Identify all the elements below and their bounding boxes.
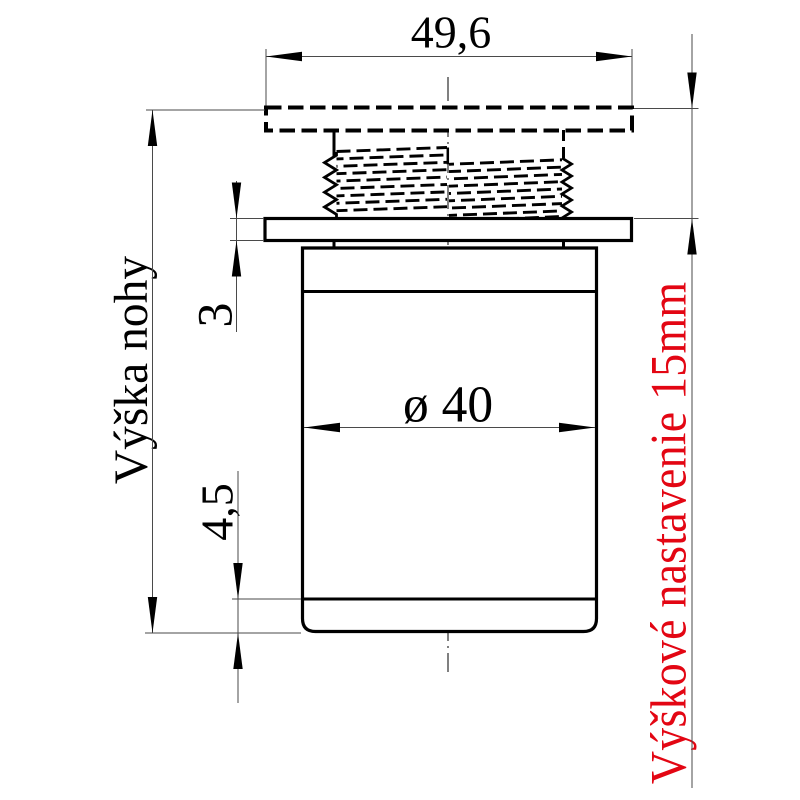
svg-text:4,5: 4,5 [192, 483, 243, 541]
svg-text:Výškové nastavenie 15mm: Výškové nastavenie 15mm [641, 282, 697, 784]
svg-text:3: 3 [187, 303, 243, 328]
svg-text:ø 40: ø 40 [403, 377, 493, 434]
svg-text:49,6: 49,6 [411, 7, 492, 58]
svg-text:Výška nohy: Výška nohy [106, 256, 158, 484]
